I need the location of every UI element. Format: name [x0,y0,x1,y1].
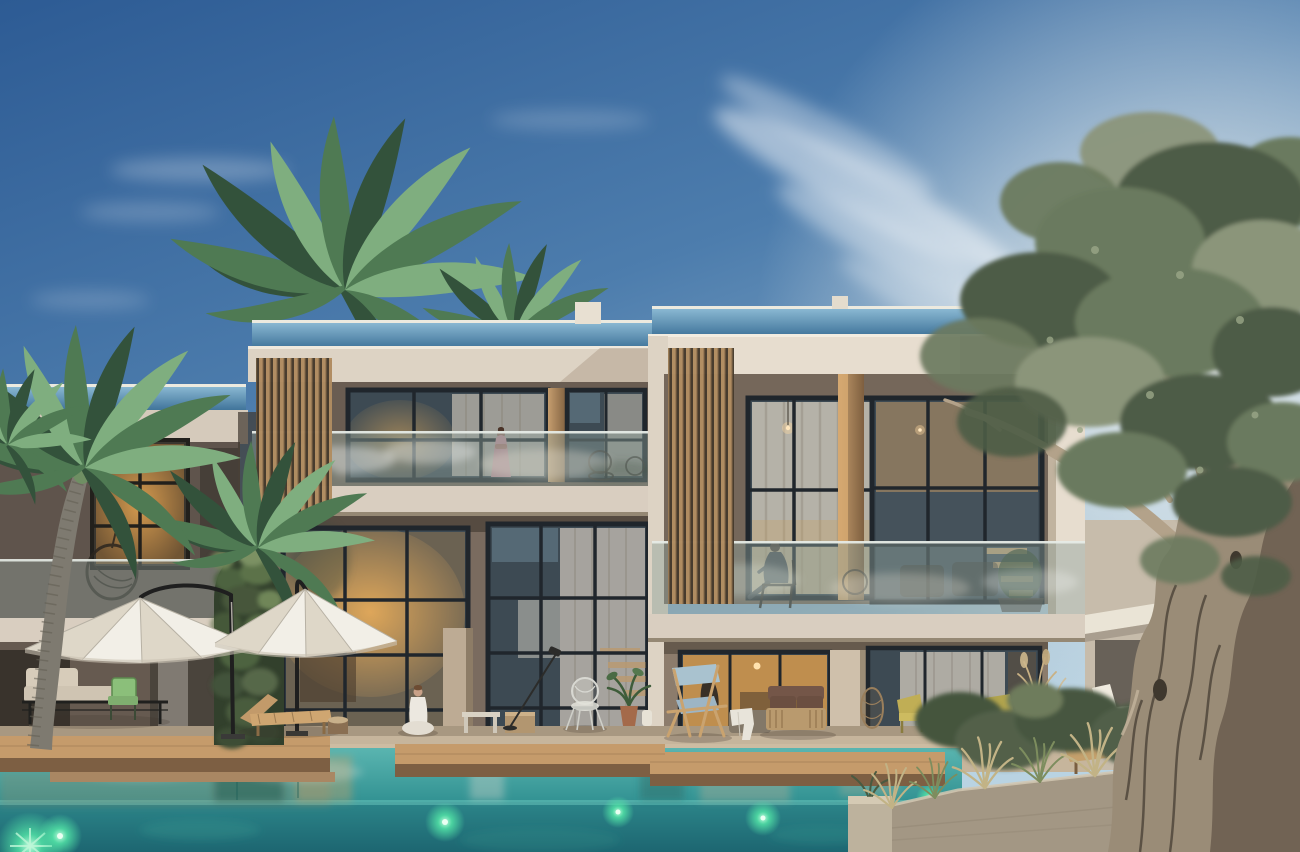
rattan-lantern [861,688,883,728]
window-ground-a2 [488,524,648,736]
stump-side-table [328,717,348,735]
architectural-render: Twilight 3D rendering of a modern two-st… [0,0,1300,852]
render-canvas: Twilight 3D rendering of a modern two-st… [0,0,1300,852]
wood-slat-screen-b [668,348,734,604]
